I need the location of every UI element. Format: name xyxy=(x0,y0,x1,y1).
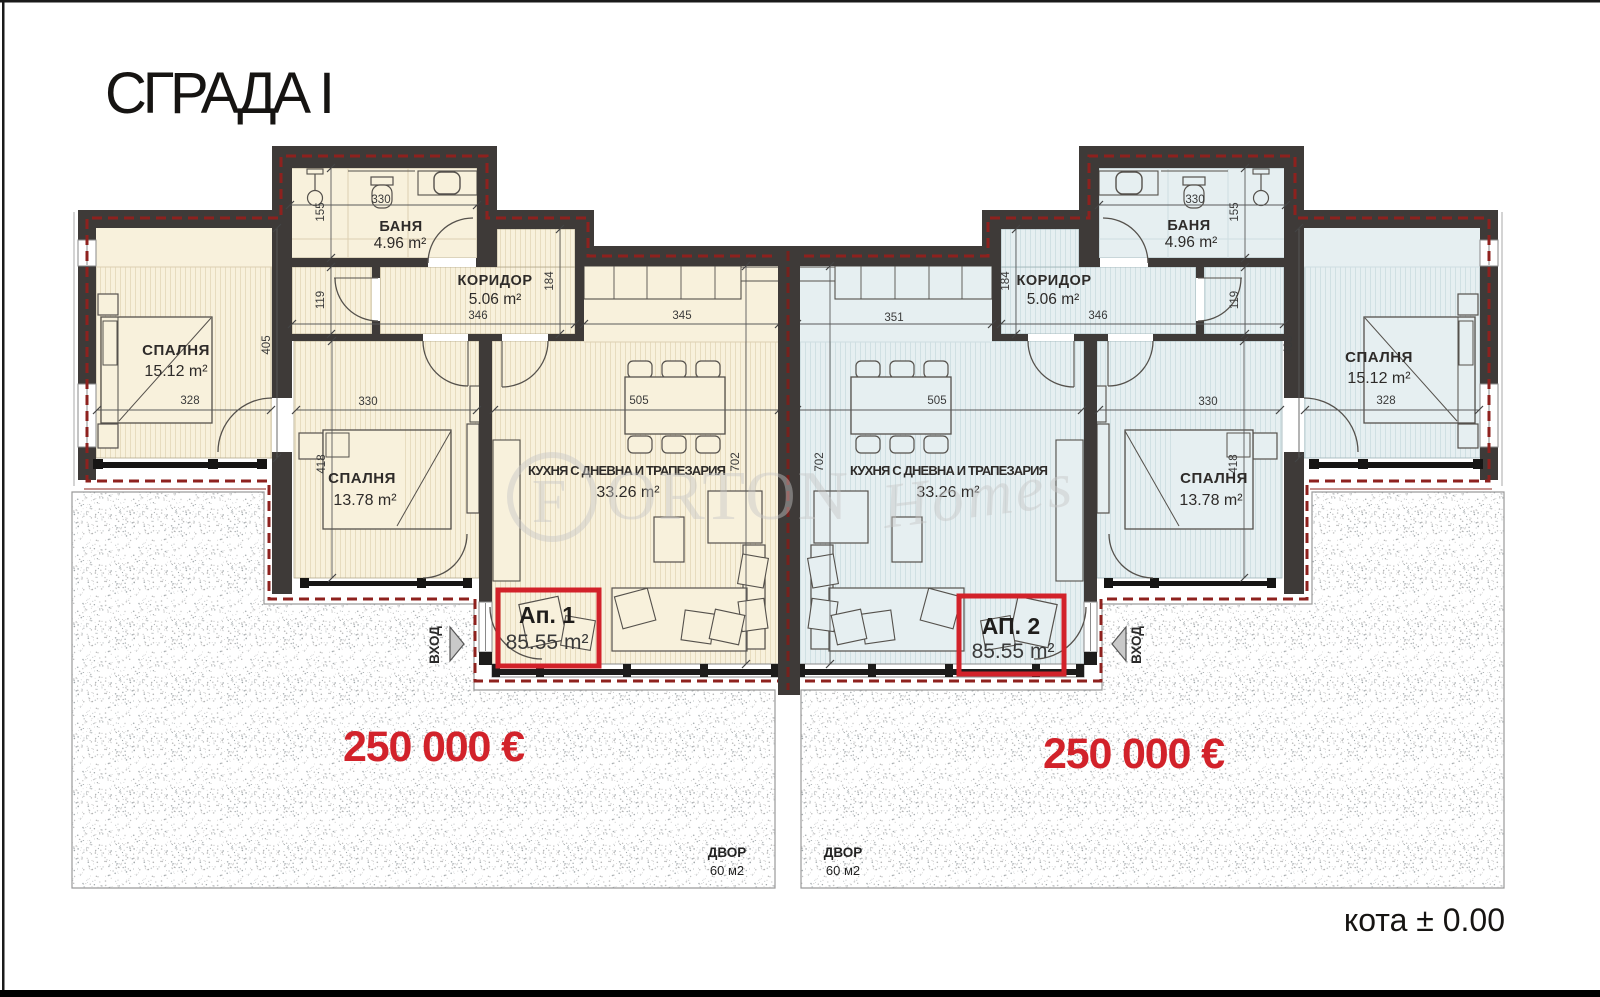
svg-text:4.96 m²: 4.96 m² xyxy=(1165,234,1218,251)
svg-text:15.12 m²: 15.12 m² xyxy=(1347,370,1411,387)
svg-text:ДВОР: ДВОР xyxy=(824,845,863,860)
svg-text:351: 351 xyxy=(884,312,903,324)
svg-text:АП. 2: АП. 2 xyxy=(982,613,1040,639)
svg-text:13.78 m²: 13.78 m² xyxy=(333,492,397,509)
svg-text:СПАЛНЯ: СПАЛНЯ xyxy=(142,342,210,359)
svg-text:15.12 m²: 15.12 m² xyxy=(144,363,208,380)
svg-text:ВХОД: ВХОД xyxy=(427,626,442,664)
svg-text:КОРИДОР: КОРИДОР xyxy=(1016,273,1091,289)
svg-text:кота ± 0.00: кота ± 0.00 xyxy=(1344,902,1505,938)
svg-text:184: 184 xyxy=(1000,271,1012,291)
svg-text:ДВОР: ДВОР xyxy=(708,845,747,860)
svg-text:505: 505 xyxy=(927,395,946,407)
svg-text:330: 330 xyxy=(358,396,377,408)
svg-text:184: 184 xyxy=(544,271,556,291)
svg-text:Ап. 1: Ап. 1 xyxy=(519,602,575,628)
svg-text:ORTON: ORTON xyxy=(606,458,848,535)
svg-text:155: 155 xyxy=(1229,202,1241,221)
svg-text:346: 346 xyxy=(468,310,487,322)
svg-text:85.55 m²: 85.55 m² xyxy=(972,640,1055,663)
svg-text:330: 330 xyxy=(1198,396,1217,408)
svg-text:БАНЯ: БАНЯ xyxy=(1167,218,1210,234)
svg-text:5.06 m²: 5.06 m² xyxy=(469,291,522,308)
svg-text:345: 345 xyxy=(672,310,691,322)
svg-text:328: 328 xyxy=(180,395,199,407)
svg-text:250 000 €: 250 000 € xyxy=(1043,730,1225,778)
svg-text:ВХОД: ВХОД xyxy=(1129,626,1144,664)
svg-text:СПАЛНЯ: СПАЛНЯ xyxy=(328,470,396,487)
svg-text:60 м2: 60 м2 xyxy=(710,863,744,878)
svg-text:119: 119 xyxy=(315,291,327,309)
svg-text:119: 119 xyxy=(1229,291,1241,309)
svg-text:418: 418 xyxy=(1228,454,1240,473)
svg-text:КОРИДОР: КОРИДОР xyxy=(457,273,532,289)
svg-text:250 000 €: 250 000 € xyxy=(343,723,525,771)
svg-text:СПАЛНЯ: СПАЛНЯ xyxy=(1345,349,1413,366)
svg-text:4.96 m²: 4.96 m² xyxy=(374,235,427,252)
svg-text:330: 330 xyxy=(371,194,390,206)
svg-text:БАНЯ: БАНЯ xyxy=(379,219,422,235)
svg-text:СГРАДА I: СГРАДА I xyxy=(105,61,335,126)
svg-text:13.78 m²: 13.78 m² xyxy=(1179,492,1243,509)
svg-text:505: 505 xyxy=(629,395,648,407)
svg-text:5.06 m²: 5.06 m² xyxy=(1027,291,1080,308)
svg-text:328: 328 xyxy=(1376,395,1395,407)
svg-text:330: 330 xyxy=(1185,194,1204,206)
svg-text:60 м2: 60 м2 xyxy=(826,863,860,878)
svg-text:346: 346 xyxy=(1088,310,1107,322)
svg-text:85.55 m²: 85.55 m² xyxy=(506,631,589,654)
svg-text:405: 405 xyxy=(261,335,273,354)
svg-text:405: 405 xyxy=(1283,335,1295,354)
svg-text:F: F xyxy=(532,468,566,536)
svg-text:155: 155 xyxy=(315,202,327,221)
svg-text:418: 418 xyxy=(316,454,328,473)
